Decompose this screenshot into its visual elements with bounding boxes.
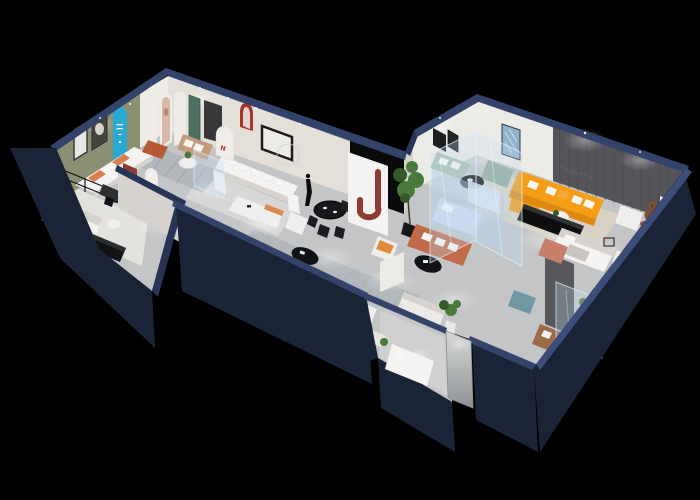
teal-door	[189, 95, 200, 141]
plant-foliage-3	[453, 300, 461, 308]
plate-art	[95, 123, 104, 135]
cyan-arch-panel	[113, 107, 127, 160]
glass-panel-right-2	[476, 131, 522, 266]
poster-figure	[164, 108, 169, 116]
plate-2	[333, 211, 337, 213]
glass-panel-right-1	[430, 131, 476, 263]
showroom-render: ··· ·· ···· ····· ··· ·· ··· ····	[0, 0, 700, 500]
plant-foliage-2	[439, 300, 449, 310]
portrait-poster	[162, 97, 170, 146]
door-glow	[449, 338, 469, 352]
maroon-arch-pillar	[348, 152, 388, 236]
arch-stand-2	[216, 126, 234, 161]
table-plant	[185, 152, 192, 159]
plate	[323, 207, 327, 209]
floorplan-svg: ··· ·· ···· ····· ··· ·· ··· ····	[0, 0, 700, 500]
table-decor	[247, 205, 251, 208]
round-table	[107, 220, 121, 229]
crimson-arch-inner	[243, 107, 250, 129]
alcove-plant	[380, 338, 388, 346]
books-2	[423, 260, 428, 263]
